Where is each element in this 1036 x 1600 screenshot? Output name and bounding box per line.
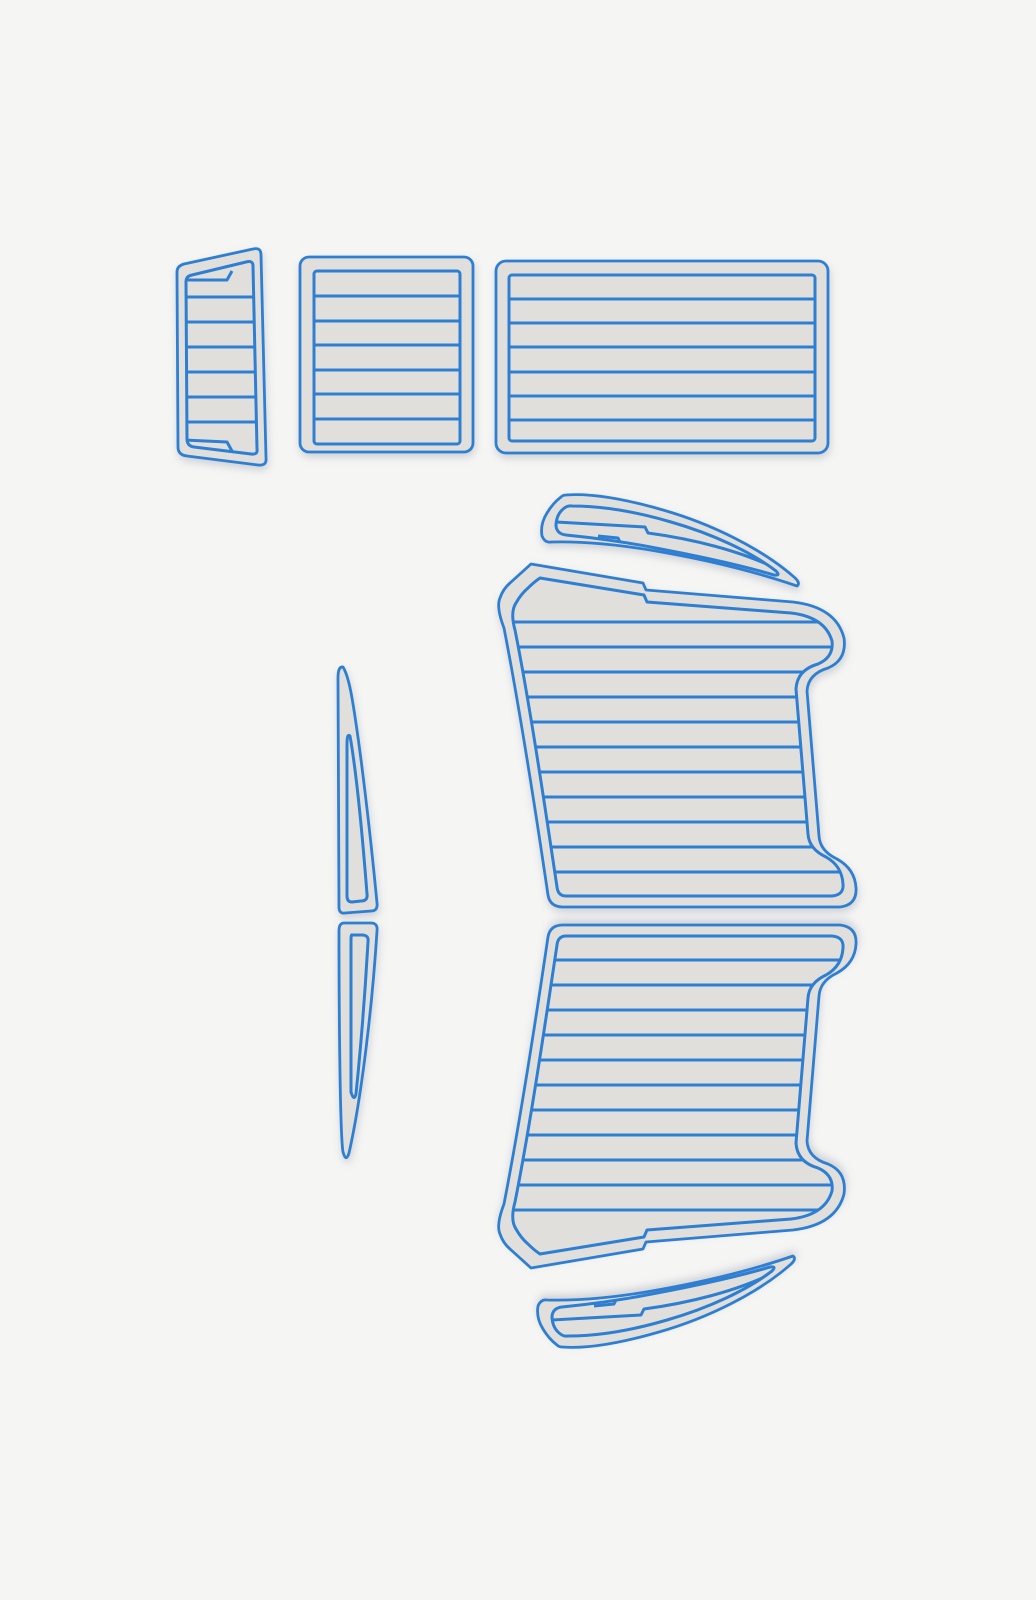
main-deck-pad-upper [488, 564, 870, 907]
wide-pad-outer-outline [496, 261, 828, 453]
wide-rectangular-pad [492, 261, 832, 453]
main-deck-pad-lower [488, 925, 870, 1268]
product-image-canvas [0, 0, 1036, 1600]
tapered-pad [168, 249, 280, 466]
side-strip-lower [339, 923, 377, 1158]
side-strip-lower-outer-outline [339, 923, 377, 1158]
square-pad-outer-outline [300, 257, 473, 452]
square-pad [296, 257, 478, 452]
side-strip-upper [338, 667, 377, 913]
pad-template-illustration [0, 0, 1036, 1600]
curved-trim-lower [538, 1256, 795, 1347]
